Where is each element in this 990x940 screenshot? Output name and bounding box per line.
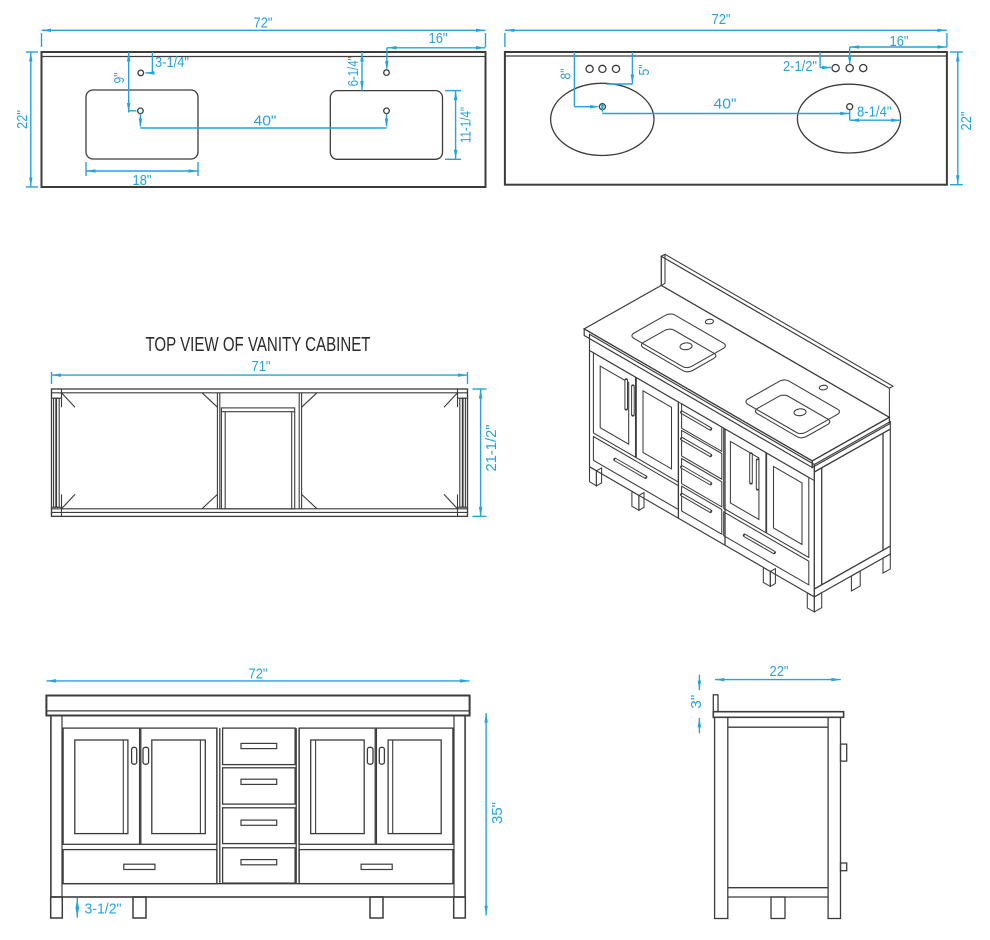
svg-text:8": 8" bbox=[558, 69, 575, 80]
svg-text:9": 9" bbox=[111, 73, 128, 84]
svg-text:3": 3" bbox=[688, 695, 705, 709]
svg-text:22": 22" bbox=[958, 112, 975, 131]
svg-text:22": 22" bbox=[770, 663, 789, 680]
svg-text:72": 72" bbox=[249, 666, 268, 683]
svg-text:71": 71" bbox=[252, 358, 271, 375]
svg-text:40": 40" bbox=[714, 96, 737, 113]
svg-text:3-1/2": 3-1/2" bbox=[85, 901, 122, 918]
svg-text:6-1/4": 6-1/4" bbox=[345, 56, 362, 86]
svg-text:2-1/2": 2-1/2" bbox=[783, 58, 817, 75]
svg-text:TOP VIEW OF VANITY CABINET: TOP VIEW OF VANITY CABINET bbox=[146, 334, 371, 356]
svg-text:11-1/4": 11-1/4" bbox=[458, 107, 475, 143]
svg-text:5": 5" bbox=[636, 65, 653, 76]
svg-text:8-1/4": 8-1/4" bbox=[857, 104, 892, 121]
svg-text:22": 22" bbox=[14, 110, 31, 129]
svg-text:35": 35" bbox=[489, 802, 506, 824]
svg-text:72": 72" bbox=[254, 15, 273, 32]
svg-text:18": 18" bbox=[133, 172, 152, 189]
svg-text:21-1/2": 21-1/2" bbox=[483, 425, 500, 472]
svg-text:3-1/4": 3-1/4" bbox=[155, 54, 189, 71]
svg-text:16": 16" bbox=[890, 33, 909, 50]
svg-text:40": 40" bbox=[254, 113, 277, 130]
svg-text:16": 16" bbox=[429, 30, 448, 47]
svg-text:72": 72" bbox=[712, 11, 731, 28]
